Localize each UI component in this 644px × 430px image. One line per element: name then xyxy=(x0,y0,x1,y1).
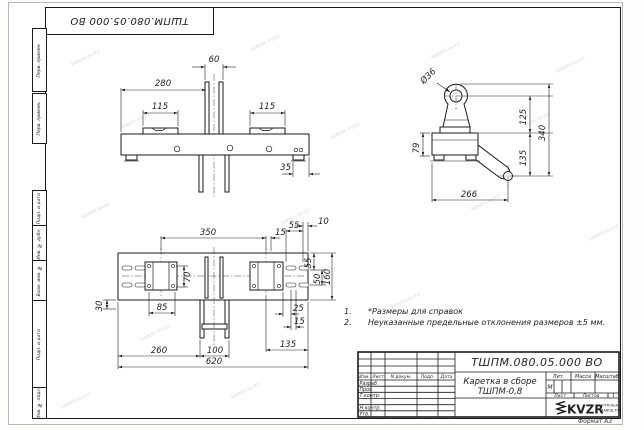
dim-plan-10-top: 10 xyxy=(318,217,329,227)
title-name-line1: Каретка в сборе xyxy=(463,377,536,387)
row-tkontr: Т.контр. xyxy=(360,393,381,399)
dim-side-266: 266 xyxy=(461,190,478,200)
row-utv: Утв. xyxy=(360,412,370,418)
note-1-number: 1. xyxy=(344,306,368,317)
col-podp: Подп. xyxy=(421,374,435,380)
front-view xyxy=(121,74,309,198)
dim-plan-30: 30 xyxy=(95,301,105,312)
company-logo: KVZR КОТЕЛЬНЫЙ ЗАВОД РЗК xyxy=(557,402,620,417)
title-name-line2: ТШПМ-0,8 xyxy=(478,387,523,397)
dim-plan-160-right: 160 xyxy=(323,269,333,285)
drawing-sheet: ТШПМ.080.05.000 ВО Перв. примен. Перв. п… xyxy=(0,0,644,430)
dim-plan-620: 620 xyxy=(206,357,222,367)
logo-text: KVZR xyxy=(567,403,604,417)
note-2: 2. Неуказанные предельные отклонения раз… xyxy=(344,317,605,328)
sheet-label: Лист xyxy=(553,393,566,399)
row-nkontr: Н.контр. xyxy=(360,405,381,411)
dim-plan-50-right: 50 xyxy=(313,274,323,285)
company-line1: КОТЕЛЬНЫЙ xyxy=(601,403,620,408)
format-label: Формат А3 xyxy=(560,418,630,425)
dim-plan-100: 100 xyxy=(207,346,223,356)
scale-header: Масштаб xyxy=(595,374,619,380)
dim-side-135: 135 xyxy=(519,150,529,166)
plan-view xyxy=(118,247,309,346)
dim-plan-350: 350 xyxy=(200,228,216,238)
dim-plan-260: 260 xyxy=(151,346,167,356)
dim-plan-85: 85 xyxy=(157,303,168,313)
dim-plan-55-top: 55 xyxy=(289,221,300,231)
note-1: 1. *Размеры для справок xyxy=(344,306,605,317)
dim-side-hole-d36: Ø36 xyxy=(417,66,438,87)
notes: 1. *Размеры для справок 2. Неуказанные п… xyxy=(344,306,605,328)
dim-side-79: 79 xyxy=(412,143,422,154)
dim-front-280: 280 xyxy=(155,79,171,89)
mass-header: Масса xyxy=(575,374,591,380)
dim-side-125: 125 xyxy=(519,109,529,125)
dim-front-35: 35 xyxy=(280,163,291,173)
dim-front-115-left: 115 xyxy=(152,102,168,112)
dim-side-340: 340 xyxy=(538,125,548,141)
sheets-value: 1 xyxy=(612,393,615,399)
dim-plan-25: 25 xyxy=(293,304,304,314)
sheets-label: Листов xyxy=(582,393,600,399)
col-data: Дата xyxy=(440,374,453,380)
dim-plan-15-low: 15 xyxy=(294,317,305,327)
dim-front-60: 60 xyxy=(209,55,220,65)
title-designation: ТШПМ.080.05.000 ВО xyxy=(471,356,602,369)
dim-plan-15-top: 15 xyxy=(275,228,286,238)
lit-value: М xyxy=(547,384,553,391)
dim-plan-55-right: 55 xyxy=(304,258,314,269)
spring-icon xyxy=(557,402,565,415)
note-2-number: 2. xyxy=(344,317,368,328)
title-block: ТШПМ.080.05.000 ВО Каретка в сборе ТШПМ-… xyxy=(357,351,620,418)
dim-plan-70: 70 xyxy=(183,272,193,283)
dim-plan-135: 135 xyxy=(280,340,296,350)
col-izm: Изм. xyxy=(359,374,370,380)
row-prov: Пров. xyxy=(360,387,374,393)
company-line2: ЗАВОД РЗК xyxy=(601,409,620,413)
dim-front-115-right: 115 xyxy=(259,102,275,112)
note-1-text: *Размеры для справок xyxy=(368,306,463,317)
side-view xyxy=(430,84,519,187)
col-list: Лист xyxy=(371,374,384,380)
lit-header: Лит. xyxy=(552,374,565,380)
col-ndoc: N докум. xyxy=(391,374,412,380)
note-2-text: Неуказанные предельные отклонения размер… xyxy=(368,317,605,328)
row-razrab: Разраб. xyxy=(360,381,379,387)
